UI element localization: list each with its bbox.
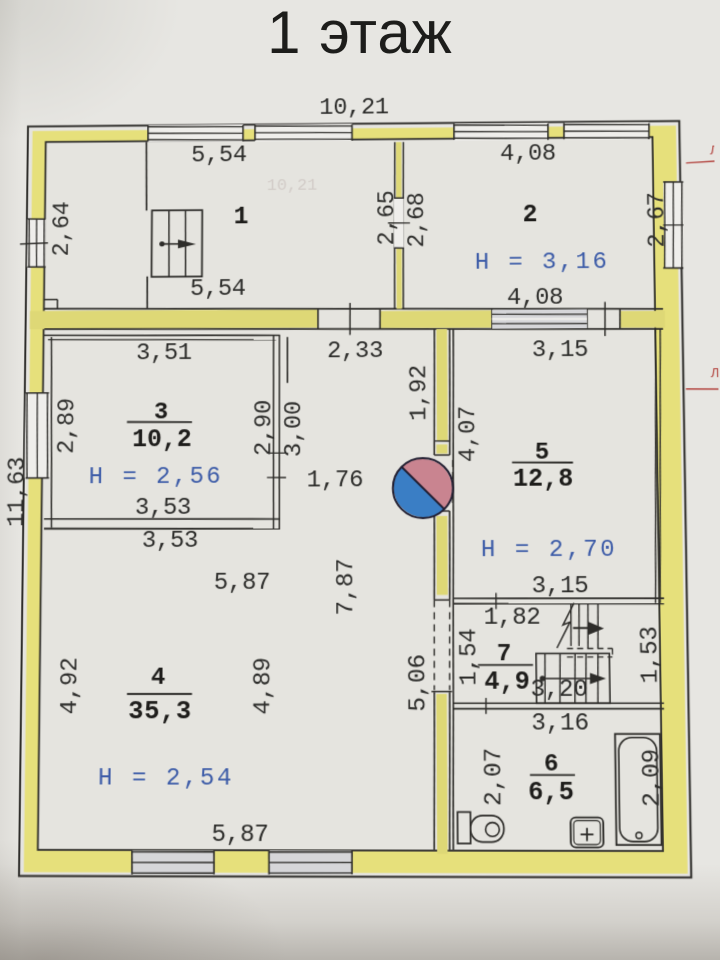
svg-text:10,2: 10,2 [132,427,192,455]
svg-text:7: 7 [497,640,511,667]
svg-text:35,3: 35,3 [128,699,192,728]
svg-text:4: 4 [151,664,166,691]
svg-text:3,51: 3,51 [136,339,192,366]
svg-text:7,87: 7,87 [332,559,359,616]
svg-text:5,06: 5,06 [404,654,432,711]
svg-text:5,87: 5,87 [211,821,268,849]
svg-text:1: 1 [234,204,249,231]
svg-text:2,65: 2,65 [374,190,401,245]
svg-text:3,53: 3,53 [135,494,191,521]
svg-text:2,07: 2,07 [480,748,508,806]
svg-text:2,90: 2,90 [250,400,277,456]
svg-text:6: 6 [544,750,559,778]
svg-text:H = 2,70: H = 2,70 [481,536,618,564]
svg-text:4,9: 4,9 [484,669,530,698]
svg-text:4,08: 4,08 [500,140,556,167]
svg-text:2,68: 2,68 [403,192,430,247]
svg-text:6,5: 6,5 [528,779,574,808]
svg-text:Л: Л [710,366,720,382]
svg-text:2,09: 2,09 [638,749,666,807]
svg-text:2,33: 2,33 [327,337,383,364]
svg-text:3,20: 3,20 [530,676,587,704]
svg-text:3,16: 3,16 [531,709,589,737]
svg-text:3,15: 3,15 [531,572,588,599]
svg-text:2,64: 2,64 [48,201,75,256]
svg-text:1,53: 1,53 [636,626,664,683]
svg-text:3,15: 3,15 [532,336,589,363]
svg-text:2,67: 2,67 [643,192,671,248]
svg-text:1,92: 1,92 [405,365,432,421]
svg-text:3,53: 3,53 [142,527,198,554]
svg-text:H = 2,54: H = 2,54 [98,764,234,792]
svg-text:1,82: 1,82 [483,604,540,631]
svg-text:4,92: 4,92 [56,658,84,715]
svg-text:4,89: 4,89 [249,657,276,714]
svg-text:3,00: 3,00 [280,401,307,457]
svg-text:5,54: 5,54 [190,275,246,302]
svg-text:5,87: 5,87 [214,569,271,596]
svg-text:5,54: 5,54 [191,142,246,169]
svg-text:H = 3,16: H = 3,16 [475,248,610,275]
svg-text:11,63: 11,63 [3,457,31,527]
svg-text:10,21: 10,21 [319,94,388,121]
svg-text:10,21: 10,21 [267,175,317,195]
svg-text:12,8: 12,8 [513,466,574,494]
svg-text:1,76: 1,76 [307,466,363,493]
svg-text:1,54: 1,54 [455,628,483,685]
svg-text:2,89: 2,89 [53,398,80,454]
svg-text:4,07: 4,07 [454,406,481,462]
svg-text:2: 2 [523,202,538,230]
svg-text:4,08: 4,08 [507,284,563,311]
svg-text:H = 2,56: H = 2,56 [89,463,224,490]
